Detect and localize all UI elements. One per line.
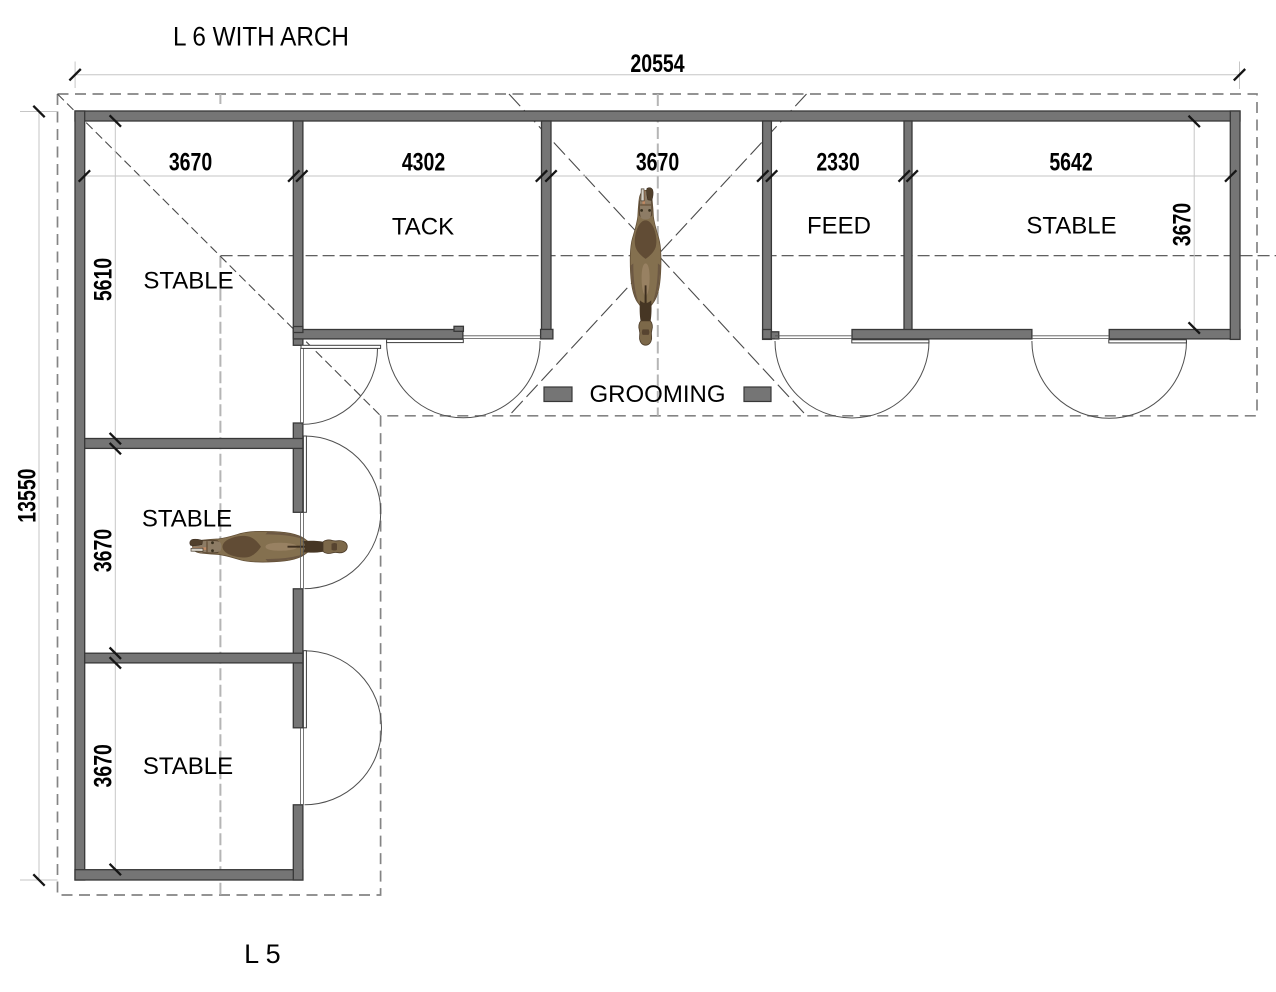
- svg-text:3670: 3670: [89, 529, 117, 572]
- svg-text:TACK: TACK: [392, 214, 454, 241]
- svg-text:FEED: FEED: [807, 213, 871, 240]
- svg-text:STABLE: STABLE: [1026, 213, 1116, 240]
- svg-text:5610: 5610: [89, 258, 117, 301]
- svg-text:4302: 4302: [402, 148, 445, 176]
- svg-text:3670: 3670: [169, 148, 212, 176]
- svg-text:STABLE: STABLE: [143, 753, 233, 780]
- svg-text:5642: 5642: [1049, 148, 1092, 176]
- svg-text:20554: 20554: [630, 50, 685, 78]
- svg-text:3670: 3670: [89, 744, 117, 787]
- svg-text:13550: 13550: [13, 469, 41, 523]
- svg-text:STABLE: STABLE: [143, 268, 233, 295]
- svg-text:3670: 3670: [636, 148, 679, 176]
- svg-text:L 6 WITH ARCH: L 6 WITH ARCH: [173, 22, 349, 51]
- svg-text:2330: 2330: [816, 148, 859, 176]
- svg-text:3670: 3670: [1168, 203, 1196, 246]
- svg-text:L 5: L 5: [244, 939, 281, 969]
- svg-text:GROOMING: GROOMING: [590, 381, 726, 408]
- svg-text:STABLE: STABLE: [142, 506, 232, 533]
